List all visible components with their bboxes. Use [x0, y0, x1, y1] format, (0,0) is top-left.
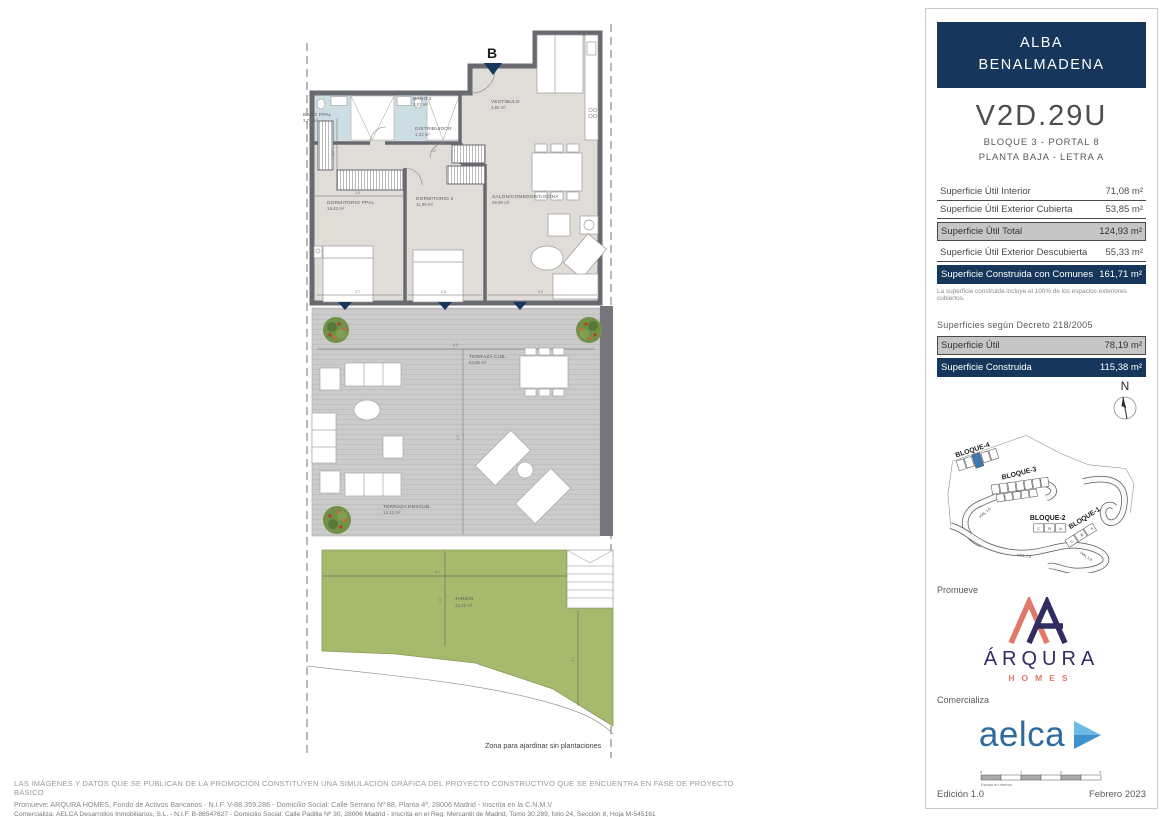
- dim-label: 4,2: [438, 598, 442, 603]
- svg-text:1: 1: [1020, 770, 1023, 775]
- area-label: Superficie Construida con Comunes: [941, 269, 1093, 280]
- plant-icon: [323, 317, 349, 343]
- area-table: Superficie Útil Interior 71,08 m² Superf…: [937, 183, 1146, 284]
- road-label: VIAL 1.0: [978, 506, 991, 518]
- edition-label: Edición 1.0: [937, 789, 984, 800]
- svg-text:2,9: 2,9: [538, 290, 543, 294]
- svg-text:BLOQUE-2: BLOQUE-2: [1030, 515, 1066, 522]
- project-title-line2: BENALMADENA: [941, 55, 1142, 77]
- svg-text:BLOQUE-1: BLOQUE-1: [1068, 506, 1102, 531]
- disclaimer-line2: Promueve: ARQURA HOMES, Fondo de Activos…: [14, 800, 764, 809]
- floor-plan: 5,5 2,7: [285, 18, 665, 766]
- site-bloque-1: BLOQUE-1 C B A: [1065, 506, 1102, 547]
- area-value: 71,08 m²: [1100, 186, 1144, 197]
- area-value: 115,38 m²: [1094, 362, 1142, 373]
- svg-text:C: C: [1037, 527, 1040, 531]
- room-label: BAÑO 2: [413, 95, 432, 102]
- seller-label: Comercializa: [937, 695, 1146, 705]
- info-panel: ALBA BENALMADENA V2D.29U BLOQUE 3 - PORT…: [925, 8, 1158, 809]
- unit-floor: PLANTA BAJA - LETRA A: [937, 152, 1146, 163]
- disclaimer-line3: Comercializa: AELCA Desarrollos Inmobili…: [14, 811, 764, 817]
- room-area: 1,23 m²: [415, 132, 430, 137]
- site-bloque-4: BLOQUE-4: [955, 441, 1000, 473]
- road-label: VIAL 1.0: [1017, 553, 1031, 559]
- room-area: 3,07 m²: [413, 102, 428, 107]
- area-value: 53,85 m²: [1100, 204, 1144, 215]
- legal-disclaimer: LAS IMÁGENES Y DATOS QUE SE PUBLICAN DE …: [14, 779, 764, 817]
- dim-label: 2,7: [456, 435, 460, 440]
- plant-icon: [576, 317, 602, 343]
- compass-n-label: N: [1110, 379, 1140, 393]
- promoter-label: Promueve: [937, 585, 1146, 595]
- dim-label: 5,5: [453, 343, 458, 347]
- scale-caption: Escala en metros: [981, 782, 1012, 787]
- room-label: JARDÍN: [455, 595, 474, 602]
- seller-name: aelca: [979, 715, 1065, 755]
- stairs: [567, 550, 613, 608]
- area-row: Superficie Útil Exterior Descubierta 55,…: [937, 244, 1146, 262]
- room-area: 3,76 m²: [303, 118, 318, 123]
- project-title-box: ALBA BENALMADENA: [937, 22, 1146, 88]
- unit-code: V2D.29U: [937, 100, 1146, 133]
- panel-footer: Edición 1.0 Febrero 2023: [937, 789, 1146, 800]
- room-area: 53,85 m²: [469, 360, 487, 365]
- area-value: 124,93 m²: [1093, 226, 1142, 237]
- room-area: 11,90 m²: [416, 202, 434, 207]
- room-area: 4,80 m²: [491, 105, 506, 110]
- promoter-name: ÁRQURA: [984, 648, 1100, 671]
- interior: 1,7 2,0 1,2 2,7 2,5 2,9: [312, 33, 606, 310]
- terrace: 5,5 2,7: [312, 306, 613, 536]
- svg-text:2,7: 2,7: [355, 290, 360, 294]
- area-row-total: Superficie Útil Total 124,93 m²: [937, 222, 1146, 241]
- aelca-arrow-icon: [1074, 719, 1104, 751]
- area-row: Superficie Útil Interior 71,08 m²: [937, 183, 1146, 201]
- area-note: La superficie construida incluye el 100%…: [937, 288, 1146, 302]
- brochure-sheet: 5,5 2,7: [0, 0, 1164, 817]
- site-plan: BLOQUE-4 BLOQUE-3 BLOQUE-2: [937, 428, 1144, 574]
- room-label: BAÑO PPAL: [303, 111, 332, 118]
- compass-icon: [1110, 393, 1140, 423]
- arqura-monogram-icon: [1005, 597, 1079, 645]
- unit-block: BLOQUE 3 - PORTAL 8: [937, 137, 1146, 148]
- area-value: 78,19 m²: [1099, 340, 1143, 351]
- area-label: Superficie Útil: [941, 340, 1000, 351]
- room-area: 42,21 m²: [455, 603, 473, 608]
- decree-row: Superficie Construida 115,38 m²: [937, 358, 1146, 377]
- area-value: 55,33 m²: [1100, 247, 1144, 258]
- room-area: 29,90 m²: [492, 200, 510, 205]
- svg-text:2,0: 2,0: [355, 191, 360, 195]
- arqura-logo: ÁRQURA HOMES: [937, 597, 1146, 683]
- date-label: Febrero 2023: [1089, 789, 1146, 800]
- svg-text:1,7: 1,7: [331, 151, 335, 156]
- area-row: Superficie Útil Exterior Cubierta 53,85 …: [937, 201, 1146, 219]
- decree-row: Superficie Útil 78,19 m²: [937, 336, 1146, 355]
- area-label: Superficie Útil Exterior Cubierta: [940, 204, 1073, 215]
- site-bloque-3: BLOQUE-3: [991, 466, 1050, 502]
- garden-caption: Zona para ajardinar sin plantaciones: [485, 741, 602, 750]
- entrance-label: B: [487, 45, 497, 61]
- area-row-constructed: Superficie Construida con Comunes 161,71…: [937, 265, 1146, 284]
- aelca-logo: aelca: [937, 715, 1146, 755]
- dim-label: 3,4: [571, 657, 575, 662]
- promoter-sub: HOMES: [1008, 673, 1074, 683]
- area-label: Superficie Útil Exterior Descubierta: [940, 247, 1087, 258]
- plant-icon: [323, 506, 351, 534]
- area-label: Superficie Construida: [941, 362, 1032, 373]
- room-label: VESTÍBULO: [491, 98, 520, 105]
- svg-text:3: 3: [1099, 770, 1102, 775]
- svg-text:0: 0: [980, 770, 983, 775]
- decree-table: Superficie Útil 78,19 m² Superficie Cons…: [937, 333, 1146, 377]
- svg-text:1,2: 1,2: [431, 149, 436, 153]
- room-area: 13,12 m²: [383, 510, 401, 515]
- site-bloque-2: BLOQUE-2 C B A: [1030, 515, 1066, 532]
- scale-bar: 0 1 2 3 Escala en metros: [937, 769, 1146, 789]
- compass: N: [937, 379, 1140, 426]
- area-label: Superficie Útil Total: [941, 226, 1022, 237]
- area-label: Superficie Útil Interior: [940, 186, 1031, 197]
- area-value: 161,71 m²: [1093, 269, 1142, 280]
- svg-text:2: 2: [1060, 770, 1063, 775]
- room-area: 16,42 m²: [327, 206, 345, 211]
- disclaimer-line1: LAS IMÁGENES Y DATOS QUE SE PUBLICAN DE …: [14, 779, 764, 797]
- svg-text:2,5: 2,5: [441, 290, 446, 294]
- dim-label: 8,1: [435, 570, 440, 574]
- decree-heading: Superficies según Decreto 218/2005: [937, 320, 1146, 330]
- road-label: VIAL 1.0: [1079, 550, 1093, 561]
- project-title-line1: ALBA: [941, 33, 1142, 55]
- garden: 8,1 4,2 3,4: [307, 550, 613, 734]
- room-label: SALÓN/COMEDOR/COCINA: [492, 193, 559, 200]
